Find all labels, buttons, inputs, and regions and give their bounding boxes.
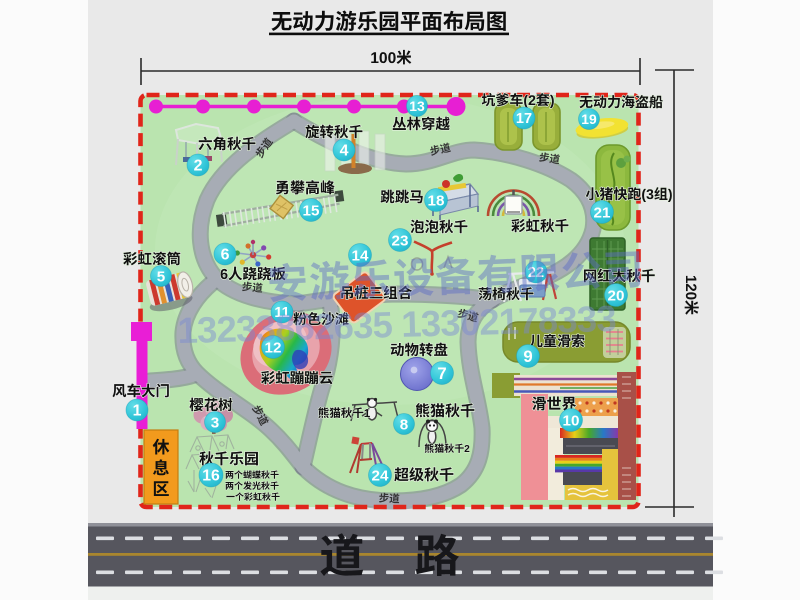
svg-text:3: 3 [211, 414, 219, 431]
svg-text:19: 19 [581, 111, 597, 127]
svg-text:14: 14 [352, 247, 369, 264]
svg-text:17: 17 [516, 111, 532, 127]
svg-text:9: 9 [523, 347, 532, 366]
svg-text:15: 15 [303, 202, 320, 219]
svg-text:21: 21 [594, 204, 611, 221]
svg-text:4: 4 [340, 143, 349, 160]
svg-text:2: 2 [194, 158, 203, 175]
svg-text:1: 1 [133, 403, 142, 420]
svg-text:10: 10 [563, 412, 580, 429]
svg-text:16: 16 [202, 468, 220, 485]
svg-text:13: 13 [409, 98, 425, 114]
svg-text:8: 8 [400, 416, 408, 433]
svg-text:24: 24 [372, 467, 389, 484]
svg-text:23: 23 [392, 232, 409, 249]
svg-text:5: 5 [157, 268, 166, 285]
svg-text:6: 6 [221, 247, 230, 264]
svg-text:7: 7 [437, 364, 446, 383]
svg-text:18: 18 [428, 192, 445, 209]
